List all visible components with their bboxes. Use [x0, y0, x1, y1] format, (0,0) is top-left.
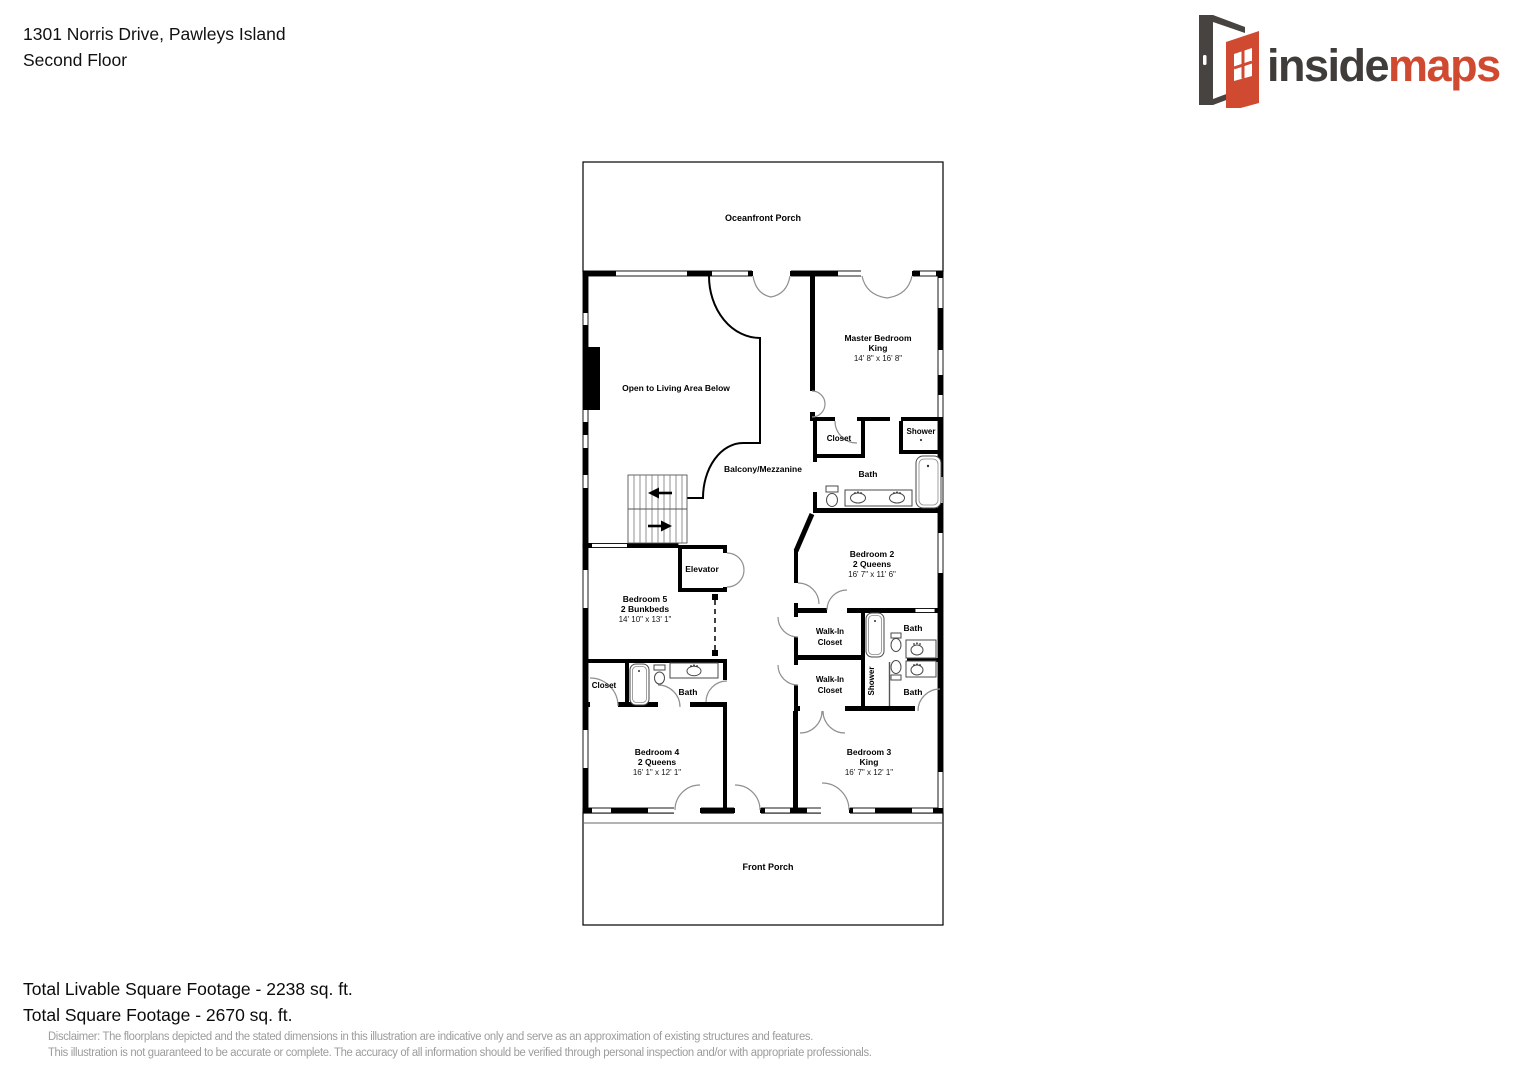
room-label-bedroom2: Bedroom 2: [850, 549, 895, 559]
sink-icon: [906, 640, 936, 658]
room-label-left-bath: Bath: [679, 687, 698, 697]
bathtub-icon: [630, 664, 649, 705]
room-bed-master-bedroom: King: [869, 343, 888, 353]
room-label-master-bedroom: Master Bedroom: [844, 333, 912, 343]
room-label-master-shower: Shower: [907, 427, 936, 436]
room-label-walkin1-line1: Walk-In: [816, 627, 844, 636]
room-label-left-closet: Closet: [592, 681, 617, 690]
room-label-master-closet: Closet: [827, 434, 852, 443]
double-vanity-icon: [845, 490, 912, 506]
room-dims-bedroom3: 16' 7" x 12' 1": [845, 768, 893, 777]
room-bed-bedroom3: King: [860, 757, 879, 767]
toilet-icon: [891, 633, 901, 652]
room-label-walkin1-line2: Closet: [818, 638, 843, 647]
room-bed-bedroom4: 2 Queens: [638, 757, 677, 767]
room-label-walkin2-line2: Closet: [818, 686, 843, 695]
room-bed-bedroom5: 2 Bunkbeds: [621, 604, 669, 614]
total-livable-sqft: Total Livable Square Footage - 2238 sq. …: [23, 979, 353, 1000]
fireplace-block: [583, 347, 600, 410]
page: 1301 Norris Drive, Pawleys Island Second…: [0, 0, 1527, 1080]
toilet-icon: [826, 486, 838, 507]
sink-icon: [670, 663, 718, 678]
toilet-icon: [891, 661, 901, 681]
railing-open-below: [712, 594, 718, 656]
room-label-shower2: Shower: [867, 667, 876, 696]
room-dims-bedroom2: 16' 7" x 11' 6": [848, 570, 896, 579]
room-dims-bedroom5: 14' 10" x 13' 1": [619, 615, 672, 624]
room-label-open-below: Open to Living Area Below: [622, 383, 730, 393]
room-label-oceanfront-porch: Oceanfront Porch: [725, 213, 801, 223]
shower-drain-icon: [920, 439, 922, 441]
room-bed-bedroom2: 2 Queens: [853, 559, 892, 569]
room-dims-master-bedroom: 14' 8" x 16' 8": [854, 354, 902, 363]
room-label-bedroom5: Bedroom 5: [623, 594, 668, 604]
staircase: [628, 475, 687, 543]
room-label-front-porch: Front Porch: [743, 862, 794, 872]
disclaimer-line1: Disclaimer: The floorplans depicted and …: [48, 1031, 813, 1043]
toilet-icon: [654, 665, 665, 684]
bathtub-icon: [916, 456, 941, 508]
room-label-balcony: Balcony/Mezzanine: [724, 464, 802, 474]
room-label-elevator: Elevator: [685, 564, 719, 574]
room-label-bedroom4: Bedroom 4: [635, 747, 680, 757]
sink-icon: [906, 661, 936, 677]
room-label-bath2: Bath: [904, 623, 923, 633]
total-sqft: Total Square Footage - 2670 sq. ft.: [23, 1005, 292, 1026]
bathtub-icon: [866, 613, 884, 657]
room-label-walkin2-line1: Walk-In: [816, 675, 844, 684]
room-label-master-bath: Bath: [859, 469, 878, 479]
room-label-bath3: Bath: [904, 687, 923, 697]
disclaimer-line2: This illustration is not guaranteed to b…: [48, 1047, 872, 1059]
room-label-bedroom3: Bedroom 3: [847, 747, 892, 757]
room-dims-bedroom4: 16' 1" x 12' 1": [633, 768, 681, 777]
floor-plan: Oceanfront Porch Open to Living Area Bel…: [0, 0, 1527, 1080]
